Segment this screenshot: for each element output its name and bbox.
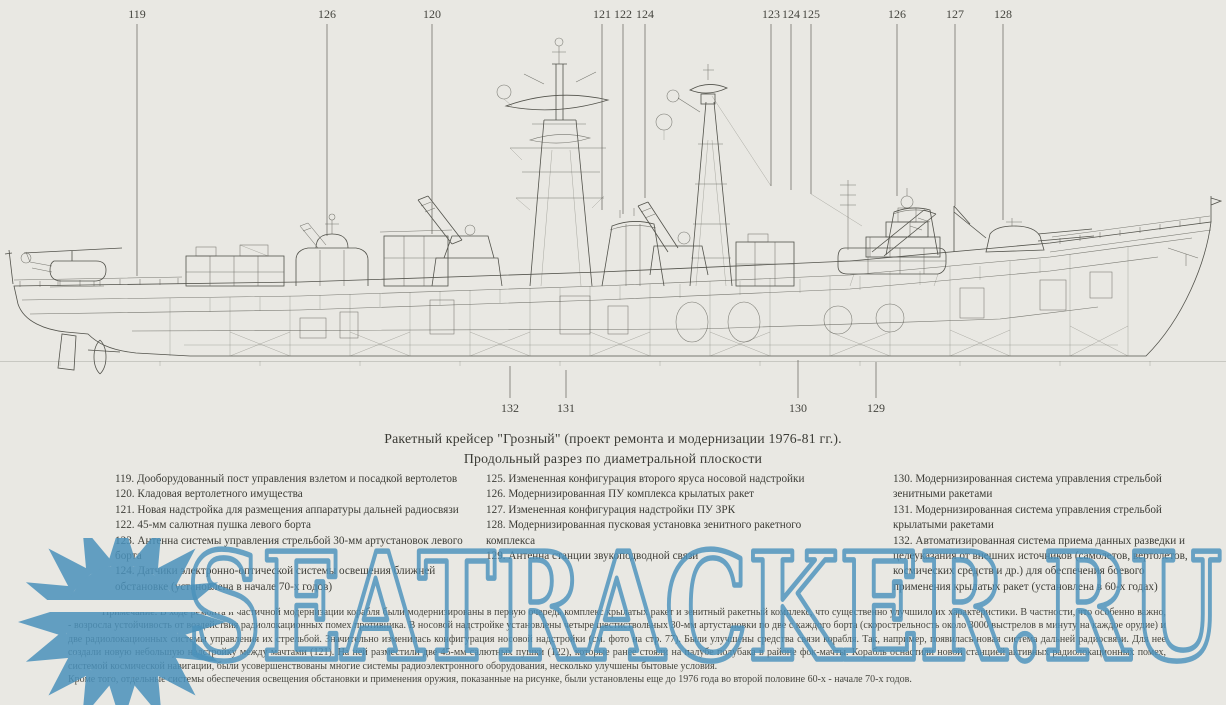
legend-text: Модернизированная пусковая установка зен…	[486, 519, 801, 546]
legend-column-3: 130. Модернизированная система управлени…	[893, 472, 1203, 595]
callout-labels-top: 119 126 120 121 122 124 123 124 125 126 …	[128, 7, 1012, 21]
callout-122: 122	[614, 7, 632, 21]
pyramid-mast	[656, 64, 732, 286]
legend-num: 121.	[115, 504, 135, 516]
legend-text: Модернизированная система управления стр…	[893, 504, 1162, 531]
legend-text: Антенна станции звукоподводной связи	[508, 550, 698, 562]
zenith-launcher	[638, 202, 708, 275]
legend-text: Антенна системы управления стрельбой 30-…	[115, 535, 463, 562]
main-tower-mast	[497, 38, 608, 286]
legend-text: Измененная конфигурация второго яруса но…	[508, 473, 804, 485]
aft-deckhouse	[186, 245, 284, 286]
legend-column-1: 119. Дооборудованный пост управления взл…	[115, 472, 487, 595]
helicopter	[21, 248, 122, 287]
hull	[0, 196, 1226, 374]
legend-item-131: 131. Модернизированная система управлени…	[893, 503, 1203, 534]
legend-text: Датчики электронно-оптической системы ос…	[115, 565, 435, 592]
callout-123: 123	[762, 7, 780, 21]
callout-labels-bottom: 132 131 130 129	[501, 401, 885, 415]
legend-item-130: 130. Модернизированная система управлени…	[893, 472, 1203, 503]
callout-131: 131	[557, 401, 575, 415]
legend-item-119: 119. Дооборудованный пост управления взл…	[115, 472, 487, 487]
callout-130: 130	[789, 401, 807, 415]
callout-132: 132	[501, 401, 519, 415]
legend-item-127: 127. Измененная конфигурация надстройки …	[486, 503, 828, 518]
legend-item-126: 126. Модернизированная ПУ комплекса крыл…	[486, 487, 828, 502]
funnel-aft	[602, 208, 664, 286]
callout-126b: 126	[888, 7, 906, 21]
legend-num: 126.	[486, 488, 506, 500]
legend-text: Новая надстройка для размещения аппарату…	[137, 504, 458, 516]
callout-120: 120	[423, 7, 441, 21]
callout-127: 127	[946, 7, 964, 21]
legend-text: Автоматизированная система приема данных…	[893, 535, 1188, 593]
callout-126a: 126	[318, 7, 336, 21]
legend-item-125: 125. Измененная конфигурация второго яру…	[486, 472, 828, 487]
note-paragraph-2: Кроме того, отдельные системы обеспечени…	[68, 673, 1166, 686]
legend-num: 124.	[115, 565, 135, 577]
machinery	[300, 272, 1112, 342]
legend-num: 128.	[486, 519, 506, 531]
callout-125: 125	[802, 7, 820, 21]
callout-128: 128	[994, 7, 1012, 21]
legend-text: Дооборудованный пост управления взлетом …	[137, 473, 457, 485]
legend-text: Измененная конфигурация надстройки ПУ ЗР…	[508, 504, 735, 516]
legend-item-129: 129. Антенна станции звукоподводной связ…	[486, 549, 828, 564]
legend-item-132: 132. Автоматизированная система приема д…	[893, 534, 1203, 596]
legend-num: 131.	[893, 504, 913, 516]
forward-superstructure	[866, 188, 940, 257]
bow-gun-turret	[986, 218, 1198, 266]
legend-num: 125.	[486, 473, 506, 485]
legend-num: 130.	[893, 473, 913, 485]
legend-num: 119.	[115, 473, 134, 485]
title-line-1: Ракетный крейсер "Грозный" (проект ремон…	[0, 429, 1226, 449]
legend-num: 122.	[115, 519, 135, 531]
drawing-title: Ракетный крейсер "Грозный" (проект ремон…	[0, 429, 1226, 468]
callout-121: 121	[593, 7, 611, 21]
note-paragraph-1: Примечание. В ходе ремонта и частичной м…	[68, 606, 1166, 673]
scanned-page: 119 126 120 121 122 124 123 124 125 126 …	[0, 0, 1226, 705]
aft-missile-launcher	[296, 214, 368, 286]
callout-124b: 124	[782, 7, 800, 21]
note-block: Примечание. В ходе ремонта и частичной м…	[68, 606, 1166, 686]
legend-item-120: 120. Кладовая вертолетного имущества	[115, 487, 487, 502]
legend-text: Модернизированная ПУ комплекса крылатых …	[508, 488, 754, 500]
midships-deckhouse	[736, 180, 856, 286]
callout-129: 129	[867, 401, 885, 415]
legend-num: 120.	[115, 488, 135, 500]
legend-text: Кладовая вертолетного имущества	[137, 488, 302, 500]
legend-text: Модернизированная система управления стр…	[893, 473, 1162, 500]
legend-item-122: 122. 45-мм салютная пушка левого борта	[115, 518, 487, 533]
callout-119: 119	[128, 7, 146, 21]
legend-num: 123.	[115, 535, 135, 547]
legend-num: 127.	[486, 504, 506, 516]
ship-cutaway-drawing: 119 126 120 121 122 124 123 124 125 126 …	[0, 0, 1226, 430]
title-line-2: Продольный разрез по диаметральной плоск…	[0, 449, 1226, 469]
legend-item-124: 124. Датчики электронно-оптической систе…	[115, 564, 487, 595]
legend-num: 129.	[486, 550, 506, 562]
callout-124a: 124	[636, 7, 654, 21]
legend-item-121: 121. Новая надстройка для размещения апп…	[115, 503, 487, 518]
callout-leader-lines	[137, 24, 1003, 398]
legend-column-2: 125. Измененная конфигурация второго яру…	[486, 472, 828, 564]
legend-item-128: 128. Модернизированная пусковая установк…	[486, 518, 828, 549]
legend-text: 45-мм салютная пушка левого борта	[137, 519, 311, 531]
sam-launcher	[418, 196, 502, 286]
legend-num: 132.	[893, 535, 913, 547]
propeller	[58, 334, 120, 374]
legend-item-123: 123. Антенна системы управления стрельбо…	[115, 534, 487, 565]
